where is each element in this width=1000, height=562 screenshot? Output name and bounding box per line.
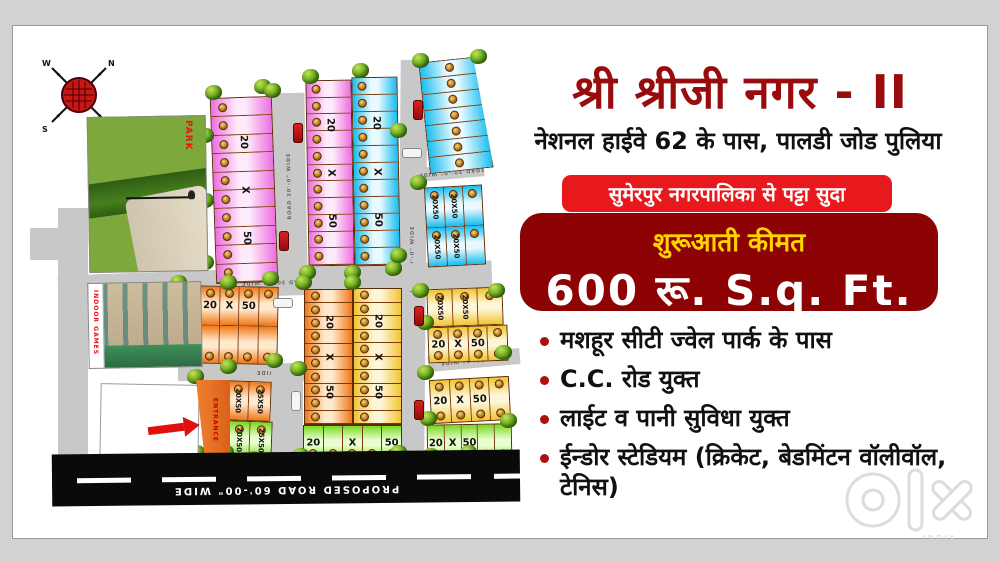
proposed-road: PROPOSED ROAD 60'-00" WIDE xyxy=(52,450,521,507)
plot-emblem-icon xyxy=(360,412,369,421)
feature-text: मशहूर सीटी ज्वेल पार्क के पास xyxy=(560,325,832,355)
plot-group-blue: 20X50 xyxy=(351,77,400,267)
plot-emblem-icon xyxy=(448,94,458,104)
plot-size-label: 20X50 xyxy=(234,427,243,452)
plot-emblem-icon xyxy=(204,352,213,361)
plot-strip xyxy=(307,131,351,148)
plot-strip xyxy=(308,198,352,215)
plot-size-label: 20 xyxy=(238,135,249,149)
plot-cell: 20X50 xyxy=(452,289,478,326)
indoor-games-photo xyxy=(87,281,202,369)
plot-strip xyxy=(211,97,272,117)
plot-size-label: X xyxy=(454,339,462,350)
white-car-icon xyxy=(273,298,293,308)
red-car-icon xyxy=(414,400,424,420)
plot-cell xyxy=(463,186,483,225)
tree-icon xyxy=(390,248,407,263)
plot-strip xyxy=(305,370,352,383)
plot-group-pink: 20X50 xyxy=(305,80,354,267)
red-car-icon xyxy=(279,231,289,251)
plot-emblem-icon xyxy=(359,167,368,176)
road-label: ROAD 30'-0" WIDE xyxy=(286,152,293,219)
plot-emblem-icon xyxy=(206,289,215,298)
plot-emblem-icon xyxy=(493,328,502,337)
plot-size-label: 20 xyxy=(324,118,335,132)
tree-icon xyxy=(264,83,281,98)
plot-emblem-icon xyxy=(313,135,322,144)
plot-size-label: 25X50 xyxy=(256,428,265,453)
svg-text:N: N xyxy=(108,59,115,68)
plot-group-yellow: 20X50 xyxy=(353,288,402,425)
plot-group-blue xyxy=(418,56,493,174)
plot-strip xyxy=(307,97,351,114)
plot-emblem-icon xyxy=(455,381,464,390)
plot-emblem-icon xyxy=(314,235,323,244)
plot-strip xyxy=(354,180,398,198)
plot-cell: 20X50 xyxy=(446,226,467,265)
plot-size-label: 50 xyxy=(372,213,383,227)
indoor-floor xyxy=(103,344,201,368)
plot-size-label: 20 xyxy=(433,396,447,408)
feature-item: C.C. रोड युक्त xyxy=(540,364,988,394)
plot-size-label: 25X50 xyxy=(255,389,264,414)
tree-icon xyxy=(344,275,361,290)
plot-size-label: 20 xyxy=(370,116,381,130)
plot-cell: 50 xyxy=(239,287,259,325)
plot-emblem-icon xyxy=(312,101,321,110)
plot-size-label: 20X50 xyxy=(461,294,470,319)
plot-cell: 25X50 xyxy=(248,382,270,421)
svg-text:S: S xyxy=(42,125,48,134)
plot-size-label: 50 xyxy=(473,394,487,406)
plot-strip xyxy=(305,290,352,303)
plot-size-label: X xyxy=(449,438,457,449)
plot-strip xyxy=(352,78,396,96)
plot-strip xyxy=(354,411,401,425)
plot-cell: X xyxy=(448,327,469,362)
plot-emblem-icon xyxy=(311,372,320,381)
plot-row: 20X5020X50 xyxy=(427,225,485,266)
plot-strip xyxy=(354,146,398,164)
plot-emblem-icon xyxy=(451,126,461,136)
plot-emblem-icon xyxy=(221,176,230,185)
plot-emblem-icon xyxy=(311,399,320,408)
plot-cell xyxy=(200,325,220,363)
road xyxy=(58,208,88,463)
plot-emblem-icon xyxy=(225,289,234,298)
plot-size-label: X xyxy=(325,169,336,177)
plot-strip xyxy=(213,152,274,172)
plot-emblem-icon xyxy=(223,250,232,259)
plot-strip xyxy=(354,370,401,384)
white-car-icon xyxy=(291,391,301,411)
tree-icon xyxy=(412,283,429,298)
plot-emblem-icon xyxy=(454,350,463,359)
plot-cell: 50 xyxy=(469,378,491,421)
plot-strip xyxy=(354,197,398,215)
tree-icon xyxy=(352,63,369,78)
tree-icon xyxy=(417,365,434,380)
price-banner: शुरूआती कीमत 600 रू. S.q. Ft. xyxy=(520,213,938,311)
park-label: PARK xyxy=(183,120,193,151)
plot-row: 20X5020X50 xyxy=(425,186,483,228)
feature-item: मशहूर सीटी ज्वेल पार्क के पास xyxy=(540,325,988,355)
tree-icon xyxy=(500,413,517,428)
project-subtitle: नेशनल हाईवे 62 के पास, पालडी जोड पुलिया xyxy=(488,124,988,157)
plot-size-label: 20X50 xyxy=(449,194,458,219)
plot-emblem-icon xyxy=(244,289,253,298)
plot-size-label: 50 xyxy=(242,300,256,311)
plot-emblem-icon xyxy=(474,349,483,358)
tree-icon xyxy=(220,359,237,374)
road xyxy=(271,368,303,460)
plot-size-label: 20 xyxy=(324,315,335,329)
plot-emblem-icon xyxy=(446,79,456,89)
plot-size-label: 20 xyxy=(203,300,217,311)
plot-emblem-icon xyxy=(311,412,320,421)
plot-emblem-icon xyxy=(218,103,227,112)
plot-emblem-icon xyxy=(444,63,454,73)
plot-strip xyxy=(216,244,277,264)
plot-strip xyxy=(215,207,276,227)
entrance-label: ENTRANCE xyxy=(211,398,218,442)
plot-strip xyxy=(305,330,352,343)
plot-emblem-icon xyxy=(360,291,369,300)
plot-size-label: X xyxy=(324,353,335,361)
plot-emblem-icon xyxy=(222,213,231,222)
plot-emblem-icon xyxy=(313,185,322,194)
plot-emblem-icon xyxy=(473,329,482,338)
plot-size-label: 20 xyxy=(373,314,384,328)
plot-cell: X xyxy=(220,287,240,325)
plot-emblem-icon xyxy=(311,292,320,301)
plot-emblem-icon xyxy=(314,218,323,227)
plot-emblem-icon xyxy=(453,329,462,338)
poster: ROAD 30'-0" WIDEROAD 30'-0" WIDEROAD 30'… xyxy=(0,0,1000,562)
plot-emblem-icon xyxy=(312,118,321,127)
plot-emblem-icon xyxy=(360,372,369,381)
plot-row: 20X50 xyxy=(430,377,510,423)
plot-size-label: 50 xyxy=(373,385,384,399)
plot-cell xyxy=(465,225,485,264)
plot-strip xyxy=(354,289,401,303)
plot-cell xyxy=(239,326,259,364)
plot-size-label: X xyxy=(240,186,251,194)
bullet-icon xyxy=(540,337,549,346)
plot-emblem-icon xyxy=(312,85,321,94)
plot-emblem-icon xyxy=(360,235,369,244)
plot-cell: 20X50 xyxy=(427,227,448,266)
plot-emblem-icon xyxy=(358,99,367,108)
plot-size-label: 50 xyxy=(324,385,335,399)
tree-icon xyxy=(412,53,429,68)
lamp-head-icon xyxy=(188,190,195,199)
plot-size-label: 20 xyxy=(431,339,445,350)
plot-emblem-icon xyxy=(359,184,368,193)
plot-emblem-icon xyxy=(313,151,322,160)
plot-emblem-icon xyxy=(360,399,369,408)
project-title: श्री श्रीजी नगर - II xyxy=(495,60,985,122)
plot-strip xyxy=(305,411,352,424)
plot-size-label: X xyxy=(225,300,233,311)
plot-size-label: 20X50 xyxy=(233,388,242,413)
feature-text: C.C. रोड युक्त xyxy=(560,364,700,394)
road xyxy=(30,228,60,260)
tree-icon xyxy=(205,85,222,100)
tree-icon xyxy=(266,353,283,368)
tree-icon xyxy=(470,49,487,64)
svg-text:W: W xyxy=(42,59,51,68)
price-label: शुरूआती कीमत xyxy=(520,223,938,259)
plot-emblem-icon xyxy=(311,386,320,395)
plot-emblem-icon xyxy=(360,385,369,394)
plot-size-label: X xyxy=(349,438,357,449)
plot-size-label: X xyxy=(371,168,382,176)
plot-emblem-icon xyxy=(220,158,229,167)
plot-emblem-icon xyxy=(360,358,369,367)
tree-icon xyxy=(220,275,237,290)
plot-emblem-icon xyxy=(243,352,252,361)
tree-icon xyxy=(495,345,512,360)
plot-cell: 20 xyxy=(428,328,449,363)
plot-emblem-icon xyxy=(223,232,232,241)
tree-icon xyxy=(385,261,402,276)
plot-group-yellow: 20X50 xyxy=(429,376,511,424)
plot-emblem-icon xyxy=(221,195,230,204)
plot-emblem-icon xyxy=(311,359,320,368)
plot-cell: X xyxy=(450,379,472,422)
plot-size-label: X xyxy=(456,395,464,406)
feature-text: लाईट व पानी सुविधा युक्त xyxy=(560,403,790,433)
plot-emblem-icon xyxy=(361,252,370,261)
plot-strip xyxy=(354,330,401,344)
plot-emblem-icon xyxy=(219,140,228,149)
bullet-icon xyxy=(540,415,549,424)
plot-emblem-icon xyxy=(359,150,368,159)
tree-icon xyxy=(295,275,312,290)
plot-emblem-icon xyxy=(219,121,228,130)
plot-cell: 20 xyxy=(200,287,220,325)
plot-row: 20X5025X50 xyxy=(226,381,270,420)
plot-emblem-icon xyxy=(360,331,369,340)
plot-size-label: 20X50 xyxy=(432,234,441,259)
proposed-road-label: PROPOSED ROAD 60'-00" WIDE xyxy=(52,482,520,498)
plot-emblem-icon xyxy=(454,158,464,168)
plot-strip xyxy=(355,231,399,249)
red-car-icon xyxy=(293,123,303,143)
plot-strip xyxy=(211,115,272,135)
bullet-icon xyxy=(540,376,549,385)
plot-emblem-icon xyxy=(360,304,369,313)
plot-group-orange: 20X5025X50 xyxy=(225,380,271,422)
tree-icon xyxy=(488,283,505,298)
plot-emblem-icon xyxy=(315,252,324,261)
plot-strip xyxy=(308,181,352,198)
tree-icon xyxy=(262,271,279,286)
price-value: 600 रू. S.q. Ft. xyxy=(520,261,938,318)
plot-emblem-icon xyxy=(311,332,320,341)
plot-emblem-icon xyxy=(468,189,477,198)
plot-size-label: 50 xyxy=(241,231,252,245)
plot-emblem-icon xyxy=(311,305,320,314)
plot-strip xyxy=(309,231,353,248)
bullet-icon xyxy=(540,454,549,463)
plot-emblem-icon xyxy=(360,218,369,227)
plot-strip xyxy=(353,95,397,113)
plot-emblem-icon xyxy=(311,345,320,354)
plot-emblem-icon xyxy=(494,379,503,388)
tree-icon xyxy=(302,69,319,84)
plot-emblem-icon xyxy=(360,318,369,327)
plot-emblem-icon xyxy=(313,168,322,177)
plot-size-label: 50 xyxy=(471,338,485,349)
plot-size-label: X xyxy=(373,353,384,361)
plot-size-label: 20 xyxy=(306,438,320,449)
plot-emblem-icon xyxy=(449,110,459,120)
plot-group-blue: 20X5020X5020X5020X50 xyxy=(424,185,486,268)
white-car-icon xyxy=(402,148,422,158)
plot-emblem-icon xyxy=(456,410,465,419)
lease-banner: सुमेरपुर नगरपालिका से पट्टा सुदा xyxy=(562,175,892,212)
plot-group-pink: 20X50 xyxy=(210,96,278,284)
plot-cell: 50 xyxy=(468,326,489,361)
plot-emblem-icon xyxy=(435,382,444,391)
tree-icon xyxy=(390,123,407,138)
plot-emblem-icon xyxy=(433,330,442,339)
plot-emblem-icon xyxy=(314,202,323,211)
plot-cell xyxy=(219,325,239,363)
tree-icon xyxy=(410,175,427,190)
indoor-games-label: INDOOR GAMES xyxy=(92,290,99,355)
red-car-icon xyxy=(413,100,423,120)
plot-emblem-icon xyxy=(436,411,445,420)
plot-emblem-icon xyxy=(264,290,273,299)
plot-size-label: 20X50 xyxy=(451,233,460,258)
plot-cell: 20X50 xyxy=(425,188,446,227)
plot-size-label: 20X50 xyxy=(436,295,445,320)
plot-emblem-icon xyxy=(359,133,368,142)
plot-strip xyxy=(309,248,353,265)
red-car-icon xyxy=(414,306,424,326)
plot-emblem-icon xyxy=(476,409,485,418)
plot-strip xyxy=(308,148,352,165)
plot-emblem-icon xyxy=(358,82,367,91)
feature-item: लाईट व पानी सुविधा युक्त xyxy=(540,403,988,433)
plot-emblem-icon xyxy=(360,345,369,354)
olx-watermark: INDIA xyxy=(845,462,985,552)
plot-emblem-icon xyxy=(474,380,483,389)
plot-emblem-icon xyxy=(358,116,367,125)
plot-size-label: 50 xyxy=(326,214,337,228)
plot-cell: 20X50 xyxy=(444,187,465,226)
olx-country-label: INDIA xyxy=(923,534,958,542)
plot-emblem-icon xyxy=(311,319,320,328)
plot-group-orange: 20X50 xyxy=(304,289,353,425)
plot-strip xyxy=(305,397,352,410)
plot-emblem-icon xyxy=(434,351,443,360)
tree-icon xyxy=(290,361,307,376)
plot-size-label: 20X50 xyxy=(430,195,439,220)
plot-emblem-icon xyxy=(360,201,369,210)
plot-emblem-icon xyxy=(453,142,463,152)
plot-emblem-icon xyxy=(470,228,479,237)
